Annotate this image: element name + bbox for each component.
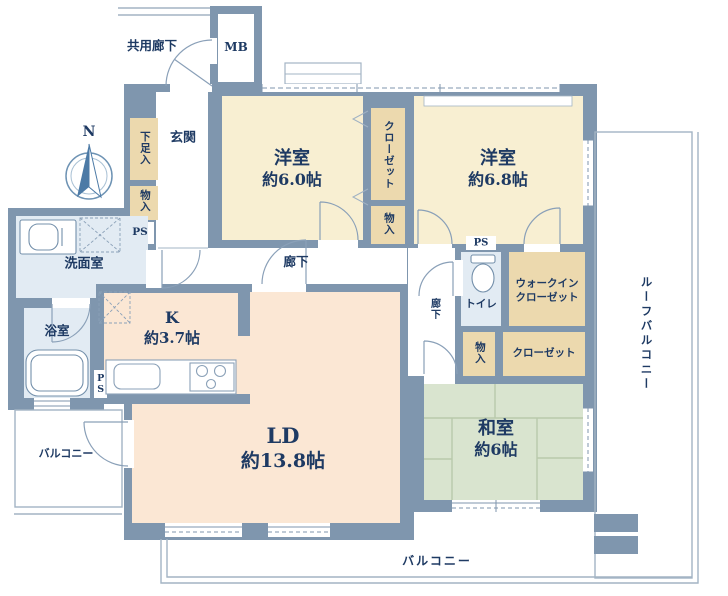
label-bathroom: 浴室 (44, 323, 69, 339)
label-living: LD 約13.8帖 (241, 422, 325, 474)
label-toilet: トイレ (465, 298, 497, 312)
label-hallway-small: 廊下 (428, 298, 441, 320)
label-kitchen-ps: PS (94, 373, 106, 395)
label-japanese-storage: 物入 (472, 342, 486, 365)
label-wic: ウォークイン クローゼット (516, 277, 579, 304)
floorplan: 共用廊下 MB 玄関 下足入 物入 PS 洗面室 浴室 洋室 約6.0帖 クロー… (0, 0, 728, 596)
label-genkan: 玄関 (170, 131, 196, 148)
label-japanese-closet: クローゼット (513, 347, 576, 361)
label-kitchen: K 約3.7帖 (144, 308, 200, 348)
label-western1: 洋室 約6.0帖 (262, 147, 322, 191)
label-japanese-room: 和室 約6帖 (474, 417, 517, 461)
floorplan-labels: 共用廊下 MB 玄関 下足入 物入 PS 洗面室 浴室 洋室 約6.0帖 クロー… (0, 0, 728, 596)
label-shoe-cupboard: 下足入 (137, 131, 151, 166)
label-western2: 洋室 約6.8帖 (468, 147, 528, 191)
label-hallway: 廊下 (283, 254, 308, 270)
label-balcony-bottom: バルコニー (402, 554, 472, 570)
label-roof-balcony: ルーフバルコニー (639, 276, 654, 392)
label-washroom: 洗面室 (64, 257, 103, 274)
label-shared-corridor: 共用廊下 (127, 38, 177, 54)
label-balcony-left: バルコニー (39, 447, 94, 461)
label-closet-mid: クローゼット (381, 121, 395, 190)
label-compass-north: N (83, 123, 96, 141)
label-mid-ps: PS (474, 237, 489, 250)
label-meter-box: MB (224, 40, 247, 56)
label-entrance-ps: PS (132, 226, 147, 240)
label-storage-mid: 物入 (381, 213, 395, 236)
label-entrance-storage: 物入 (137, 190, 151, 213)
